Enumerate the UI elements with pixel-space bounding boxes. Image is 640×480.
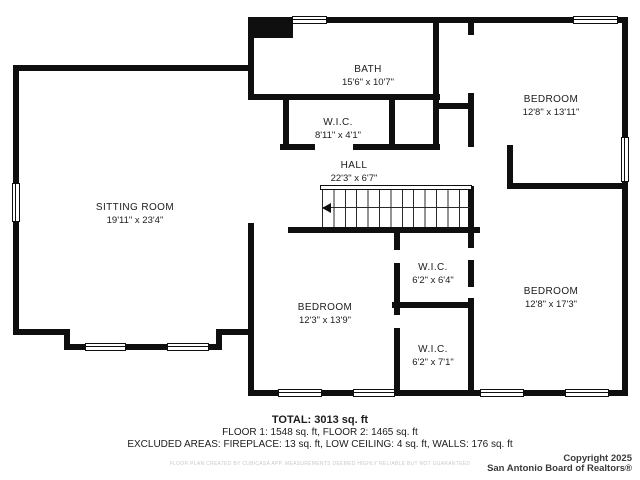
room-name: HALL [331, 160, 378, 171]
window [292, 16, 327, 24]
floor-areas-text: FLOOR 1: 1548 sq. ft, FLOOR 2: 1465 sq. … [0, 427, 640, 438]
room-name: BATH [342, 64, 394, 75]
total-area-text: TOTAL: 3013 sq. ft [0, 414, 640, 426]
wall [280, 144, 315, 150]
room-name: BEDROOM [523, 94, 580, 105]
wall [248, 17, 254, 100]
window [573, 16, 618, 24]
window [167, 343, 209, 351]
wall [353, 144, 440, 150]
room-dimensions: 12'8" x 13'11" [523, 107, 580, 118]
room-label-hall: HALL 22'3" x 6'7" [331, 160, 378, 184]
room-name: W.I.C. [412, 262, 454, 273]
wall [468, 93, 474, 147]
stair-direction-arrow-icon [322, 203, 331, 213]
window [85, 343, 126, 351]
wall [507, 183, 628, 189]
room-label-bedroom-top-right: BEDROOM 12'8" x 13'11" [523, 94, 580, 118]
copyright-notice: Copyright 2025 San Antonio Board of Real… [487, 454, 632, 474]
room-dimensions: 8'11" x 4'1" [315, 130, 361, 141]
room-dimensions: 6'2" x 6'4" [412, 275, 454, 286]
wall [468, 260, 474, 287]
stair-treads [322, 190, 470, 227]
room-dimensions: 22'3" x 6'7" [331, 173, 378, 184]
wall [394, 328, 400, 390]
wall [433, 103, 474, 109]
room-name: W.I.C. [315, 117, 361, 128]
wall [468, 233, 474, 248]
window [353, 389, 395, 397]
wall [248, 223, 254, 396]
room-label-bedroom-bottom-center: BEDROOM 12'3" x 13'9" [298, 302, 352, 326]
stair-direction-line [322, 207, 470, 208]
floor-plan-canvas: BATH 15'6" x 10'7" W.I.C. 8'11" x 4'1" H… [0, 0, 640, 480]
room-dimensions: 12'8" x 17'3" [524, 299, 578, 310]
room-dimensions: 15'6" x 10'7" [342, 77, 394, 88]
room-label-wic-top: W.I.C. 8'11" x 4'1" [315, 117, 361, 141]
room-name: SITTING ROOM [96, 202, 174, 213]
room-label-wic-bottom: W.I.C. 6'2" x 7'1" [412, 344, 454, 368]
window [12, 183, 20, 222]
area-summary: TOTAL: 3013 sq. ft FLOOR 1: 1548 sq. ft,… [0, 414, 640, 450]
room-dimensions: 12'3" x 13'9" [298, 315, 352, 326]
room-name: BEDROOM [298, 302, 352, 313]
room-name: W.I.C. [412, 344, 454, 355]
room-label-bedroom-bottom-right: BEDROOM 12'8" x 17'3" [524, 286, 578, 310]
room-label-sitting-room: SITTING ROOM 19'11" x 23'4" [96, 202, 174, 226]
room-dimensions: 19'11" x 23'4" [96, 215, 174, 226]
room-label-bath: BATH 15'6" x 10'7" [342, 64, 394, 88]
wall [248, 94, 440, 100]
room-label-wic-middle: W.I.C. 6'2" x 6'4" [412, 262, 454, 286]
wall [622, 17, 628, 396]
wall [389, 100, 395, 150]
wall [283, 100, 289, 150]
staircase [320, 185, 472, 233]
wall [468, 298, 474, 390]
window [621, 137, 629, 182]
wall [13, 65, 254, 71]
copyright-line2: San Antonio Board of Realtors® [487, 464, 632, 474]
fireplace-block [248, 17, 293, 38]
window [278, 389, 322, 397]
room-name: BEDROOM [524, 286, 578, 297]
wall [433, 23, 439, 147]
window [480, 389, 524, 397]
wall [392, 302, 474, 308]
room-dimensions: 6'2" x 7'1" [412, 357, 454, 368]
window [565, 389, 609, 397]
wall [13, 329, 70, 335]
wall [468, 23, 474, 35]
excluded-areas-text: EXCLUDED AREAS: FIREPLACE: 13 sq. ft, LO… [0, 439, 640, 450]
